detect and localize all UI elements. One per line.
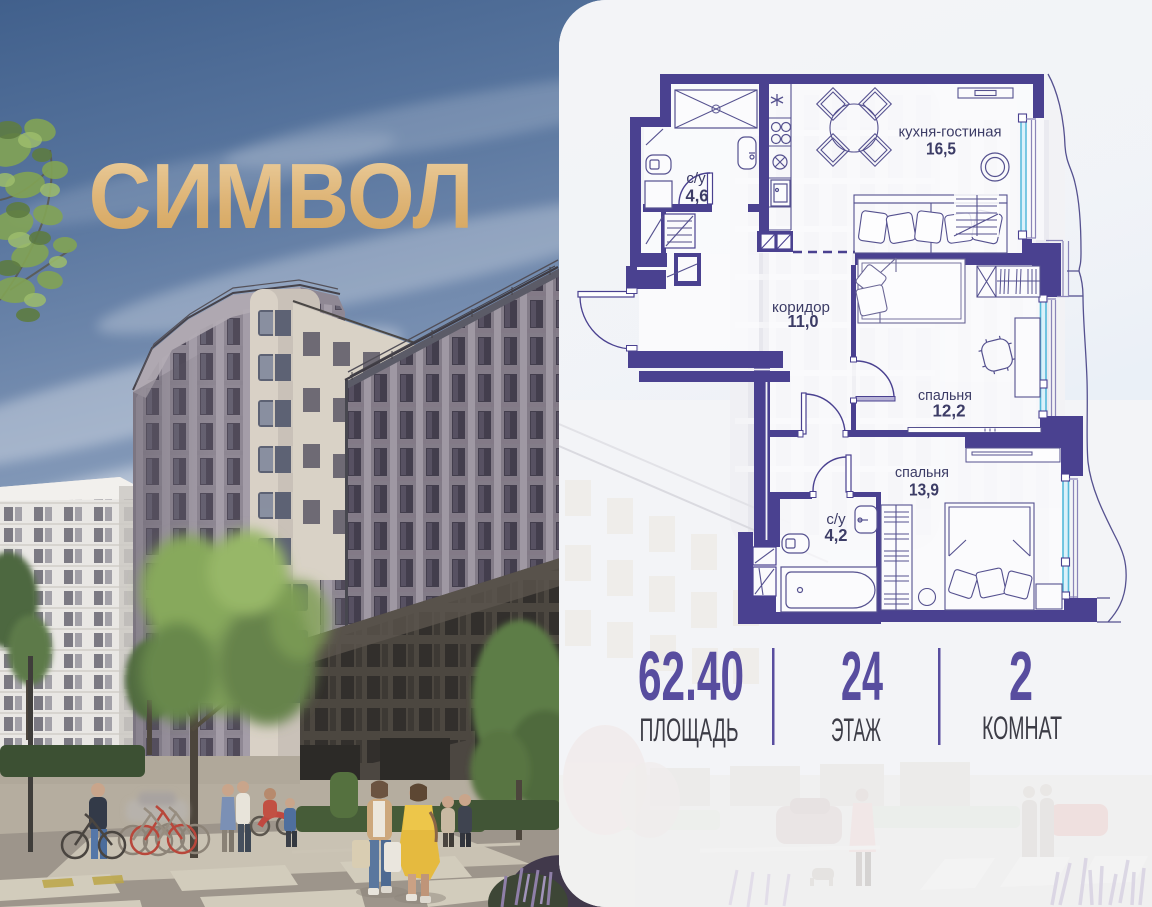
svg-text:с/у: с/у [686,170,706,187]
svg-text:4,6: 4,6 [686,186,709,206]
svg-text:24: 24 [841,637,883,715]
svg-text:16,5: 16,5 [926,139,956,159]
svg-text:12,2: 12,2 [933,401,966,421]
svg-text:62.40: 62.40 [638,637,744,715]
svg-text:СИМВОЛ: СИМВОЛ [89,144,474,248]
svg-text:4,2: 4,2 [825,525,848,545]
svg-text:ПЛОЩАДЬ: ПЛОЩАДЬ [640,712,739,748]
svg-text:спальня: спальня [895,464,949,481]
svg-text:13,9: 13,9 [909,480,939,500]
svg-text:11,0: 11,0 [788,311,819,331]
svg-text:ЭТАЖ: ЭТАЖ [831,712,881,748]
svg-text:2: 2 [1009,637,1033,715]
svg-text:КОМНАТ: КОМНАТ [982,710,1062,746]
